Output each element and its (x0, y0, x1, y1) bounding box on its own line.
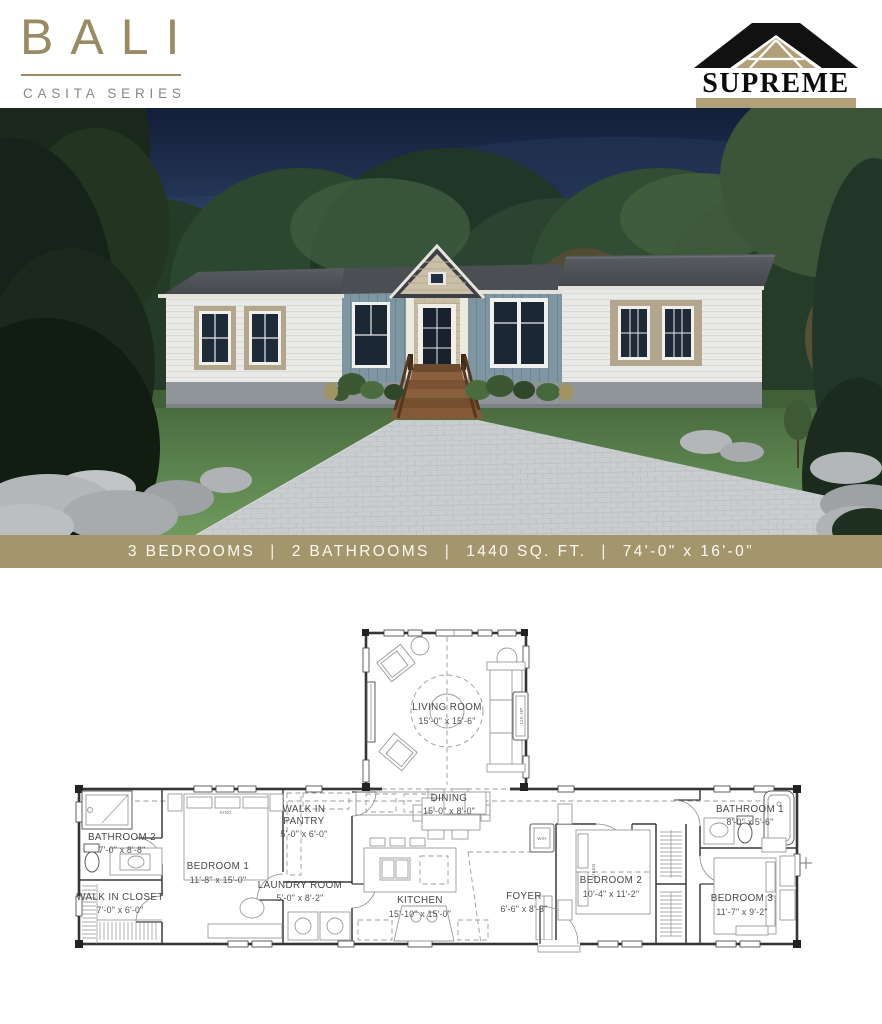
supreme-logo: SUPREME (688, 16, 864, 110)
label-living-room: LIVING ROOM (412, 702, 482, 713)
spec-separator: | (270, 543, 276, 561)
right-wing-window-2 (662, 306, 694, 360)
dims-bathroom-2: 7'-0" x 8'-8" (99, 845, 146, 855)
plus-mark (800, 857, 812, 869)
spec-separator: | (445, 543, 451, 561)
label-bedroom-2: BEDROOM 2 (580, 875, 642, 886)
water-heater: W/H (530, 824, 554, 852)
hvac-mini-split: 12K-HP (513, 692, 528, 740)
spec-sqft: 1440 SQ. FT. (466, 543, 586, 561)
label-walk-in-closet: WALK IN CLOSET (76, 892, 163, 903)
hvac-label: 12K-HP (519, 707, 524, 724)
dims-dining: 15'-0" x 8'-0" (423, 806, 475, 816)
label-walk-in-pantry-1: WALK IN (283, 804, 326, 815)
dims-bathroom-1: 8'-0" x 5'-6" (727, 817, 774, 827)
dims-bedroom-2: 10'-4" x 11'-2" (583, 889, 639, 899)
left-wing (166, 294, 342, 382)
label-dining: DINING (431, 793, 468, 804)
dims-walk-in-closet: 7'-0" x 6'-0" (97, 905, 144, 915)
hall-closets (660, 830, 682, 936)
dims-living-room: 15'-0" x 15'-6" (418, 716, 475, 726)
shower (82, 791, 132, 829)
dresser (208, 924, 282, 938)
dims-walk-in-pantry: 5'-0" x 6'-0" (281, 829, 328, 839)
label-bedroom-3: BEDROOM 3 (711, 893, 774, 904)
title-underline (21, 74, 181, 76)
laundry-appliances (288, 912, 350, 940)
series-name: CASITA SERIES (23, 86, 186, 101)
logo-bar (696, 98, 856, 108)
home-exterior-photo (0, 108, 882, 535)
dims-foyer: 6'-6" x 8'-3" (501, 904, 548, 914)
dims-bedroom-1: 11'-8" x 15'-0" (190, 875, 246, 885)
foyer-closet (536, 896, 552, 940)
brand-name: SUPREME (702, 68, 849, 99)
side-table (411, 637, 429, 655)
spec-banner: 3 BEDROOMS | 2 BATHROOMS | 1440 SQ. FT. … (0, 535, 882, 568)
spec-bedrooms: 3 BEDROOMS (128, 543, 255, 561)
bed1-size-label: KING (220, 810, 232, 815)
label-bedroom-1: BEDROOM 1 (187, 861, 249, 872)
label-laundry-room: LAUNDRY ROOM (258, 880, 342, 891)
label-foyer: FOYER (506, 891, 542, 902)
left-wing-window-2 (244, 306, 286, 370)
tv-console (367, 682, 375, 742)
spec-separator: | (601, 543, 607, 561)
floor-plan: 12K-HP (0, 600, 882, 1024)
front-door (418, 304, 456, 372)
water-heater-label: W/H (537, 836, 546, 841)
dims-laundry-room: 5'-0" x 8'-2" (277, 893, 324, 903)
label-walk-in-pantry-2: PANTRY (283, 816, 324, 827)
dims-kitchen: 15'-10" x 15'-0" (389, 909, 451, 919)
bedroom-2-furniture: QUEEN (558, 804, 650, 920)
right-wing (562, 288, 762, 382)
armchair (379, 733, 417, 771)
chair (240, 898, 264, 918)
spec-bathrooms: 2 BATHROOMS (292, 543, 430, 561)
label-bathroom-1: BATHROOM 1 (716, 804, 784, 815)
bedroom-3-furniture (714, 838, 795, 935)
spec-size: 74'-0" x 16'-0" (623, 543, 754, 561)
brochure-page: BALI CASITA SERIES SUPREME (0, 0, 882, 1024)
label-kitchen: KITCHEN (397, 895, 443, 906)
left-wing-window-1 (194, 306, 236, 370)
model-name: BALI (20, 12, 196, 62)
logo-roof-icon (694, 23, 858, 68)
dims-bedroom-3: 11'-7" x 9'-2" (716, 907, 767, 917)
right-wing-window-1 (618, 306, 650, 360)
toilet (84, 844, 99, 872)
armchair (377, 644, 415, 681)
label-bathroom-2: BATHROOM 2 (88, 832, 156, 843)
